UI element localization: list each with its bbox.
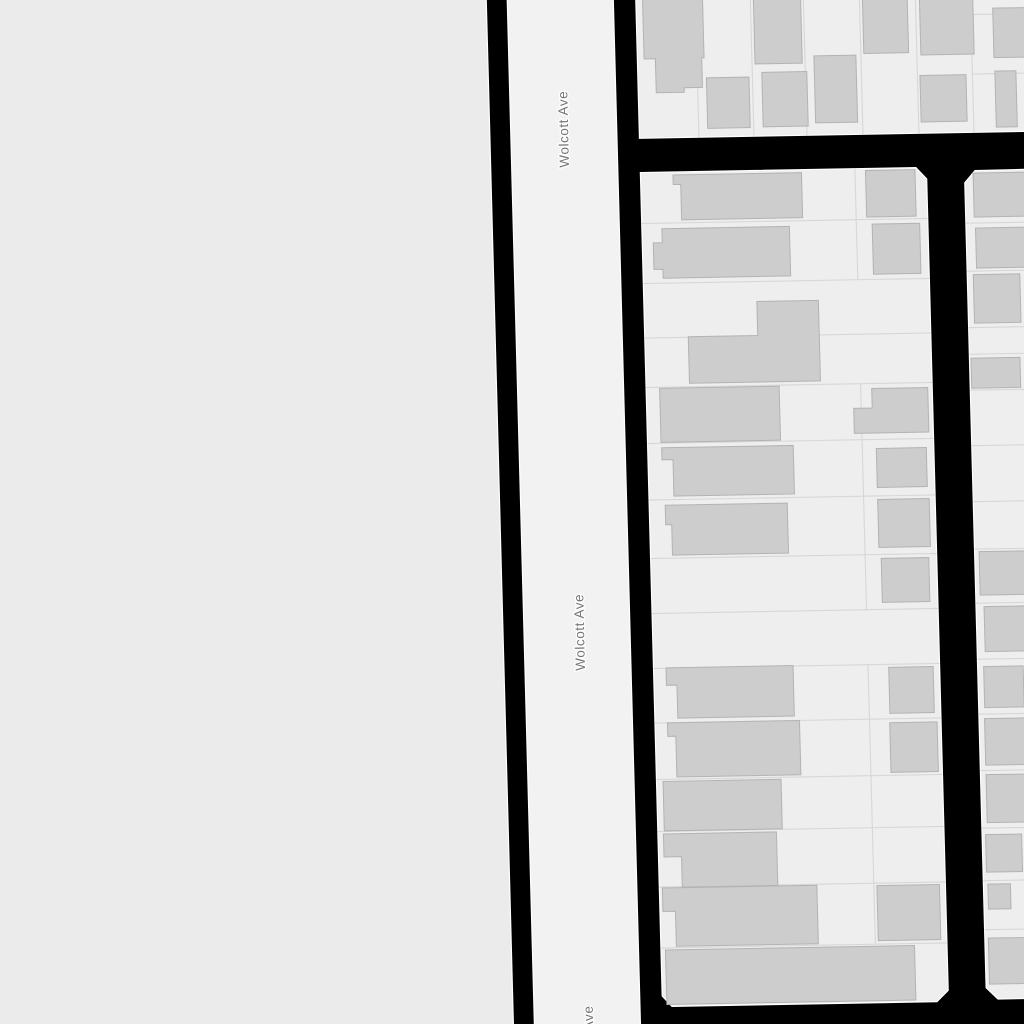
svg-text:Wolcott Ave: Wolcott Ave <box>581 1005 598 1024</box>
svg-text:Wolcott Ave: Wolcott Ave <box>571 594 588 671</box>
svg-text:Wolcott Ave: Wolcott Ave <box>555 91 572 168</box>
